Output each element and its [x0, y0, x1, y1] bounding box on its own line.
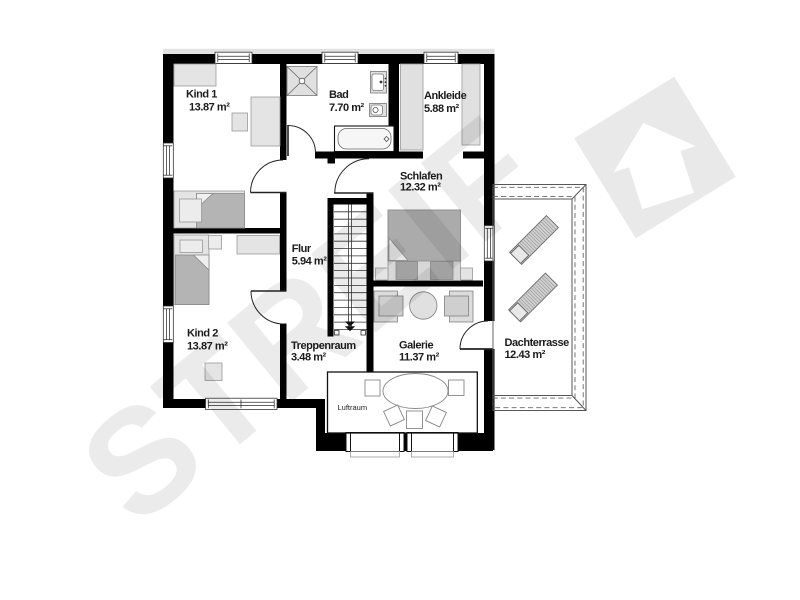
svg-text:Dachterrasse: Dachterrasse — [505, 337, 570, 349]
svg-text:Luftraum: Luftraum — [338, 403, 368, 412]
svg-text:Bad: Bad — [329, 89, 348, 101]
svg-text:12.43 m²: 12.43 m² — [505, 349, 546, 361]
svg-text:11.37 m²: 11.37 m² — [399, 352, 440, 364]
svg-text:7.70 m²: 7.70 m² — [329, 102, 365, 114]
svg-text:13.87 m²: 13.87 m² — [189, 102, 230, 114]
svg-text:Kind 1: Kind 1 — [186, 89, 217, 101]
